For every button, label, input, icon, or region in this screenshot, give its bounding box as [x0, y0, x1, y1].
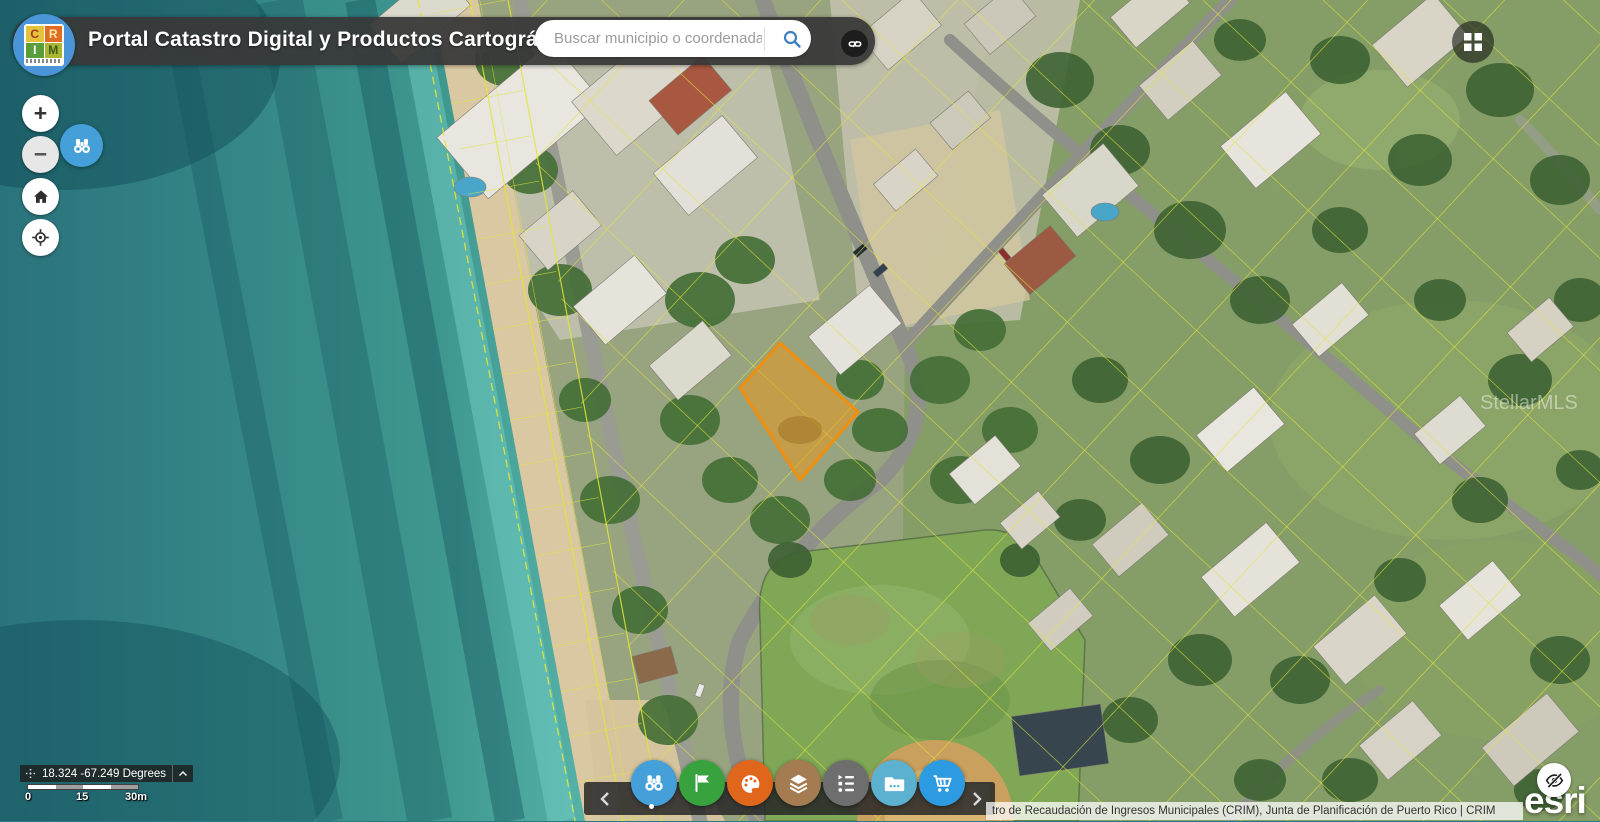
zoom-in-button[interactable]: +: [22, 95, 59, 132]
scale-tick-0: 0: [25, 791, 31, 803]
coordinates-bar: 18.324 -67.249 Degrees: [20, 765, 193, 782]
tool-legend-list[interactable]: [823, 760, 869, 806]
tool-search-binoculars[interactable]: [631, 760, 677, 806]
app-grid-button[interactable]: [1452, 21, 1494, 63]
tool-cart[interactable]: [919, 760, 965, 806]
layers-icon: [786, 771, 811, 796]
chevron-left-icon: [599, 791, 611, 807]
coords-collapse-button[interactable]: [173, 765, 193, 782]
stellar-mls-watermark: StellarMLS: [1480, 392, 1578, 415]
home-button[interactable]: [22, 178, 59, 215]
eye-slash-icon: [1544, 770, 1565, 791]
scale-tick-15: 15: [76, 791, 88, 803]
scale-tick-30m: 30m: [125, 791, 147, 803]
chevron-up-icon: [177, 768, 189, 780]
crosshair-dots-icon: [24, 767, 37, 780]
attribution-text: tro de Recaudación de Ingresos Municipal…: [986, 802, 1523, 820]
chevron-right-icon: [971, 791, 983, 807]
palette-icon: [738, 771, 763, 796]
search-icon: [781, 28, 803, 50]
crim-logo: C R I M: [13, 14, 75, 76]
link-icon: [847, 36, 863, 52]
search-input[interactable]: [552, 29, 764, 48]
search-divider: [764, 27, 765, 51]
share-link-button[interactable]: [841, 30, 868, 57]
scale-bar: [27, 784, 139, 790]
locate-icon: [30, 227, 51, 248]
tool-documents-folder[interactable]: [871, 760, 917, 806]
search-button[interactable]: [773, 20, 811, 57]
home-icon: [31, 187, 51, 207]
locate-button[interactable]: [22, 219, 59, 256]
dock-prev-button[interactable]: [592, 784, 618, 813]
coordinates-value: 18.324 -67.249 Degrees: [40, 768, 172, 780]
parcel-grid: [418, 0, 1600, 821]
dock-page-indicator: [649, 804, 654, 809]
list-icon: [834, 771, 858, 795]
grid-icon: [1464, 33, 1482, 51]
tool-draw-palette[interactable]: [727, 760, 773, 806]
zoom-out-button[interactable]: −: [22, 136, 59, 173]
folder-icon: [882, 771, 907, 796]
binoculars-icon: [641, 770, 667, 796]
flag-icon: [690, 771, 714, 795]
tool-bookmarks-flag[interactable]: [679, 760, 725, 806]
binoculars-icon: [70, 134, 94, 158]
catastro-portal-app: { "header": { "title": "Portal Catastro …: [0, 0, 1600, 821]
page-title: Portal Catastro Digital y Productos Cart…: [88, 28, 588, 52]
search-tool-fab[interactable]: [60, 124, 103, 167]
hide-attribution-button[interactable]: [1537, 763, 1571, 797]
search-bar: [535, 20, 811, 57]
tool-basemap-layers[interactable]: [775, 760, 821, 806]
cart-icon: [930, 771, 955, 796]
map-canvas[interactable]: [0, 0, 1600, 821]
